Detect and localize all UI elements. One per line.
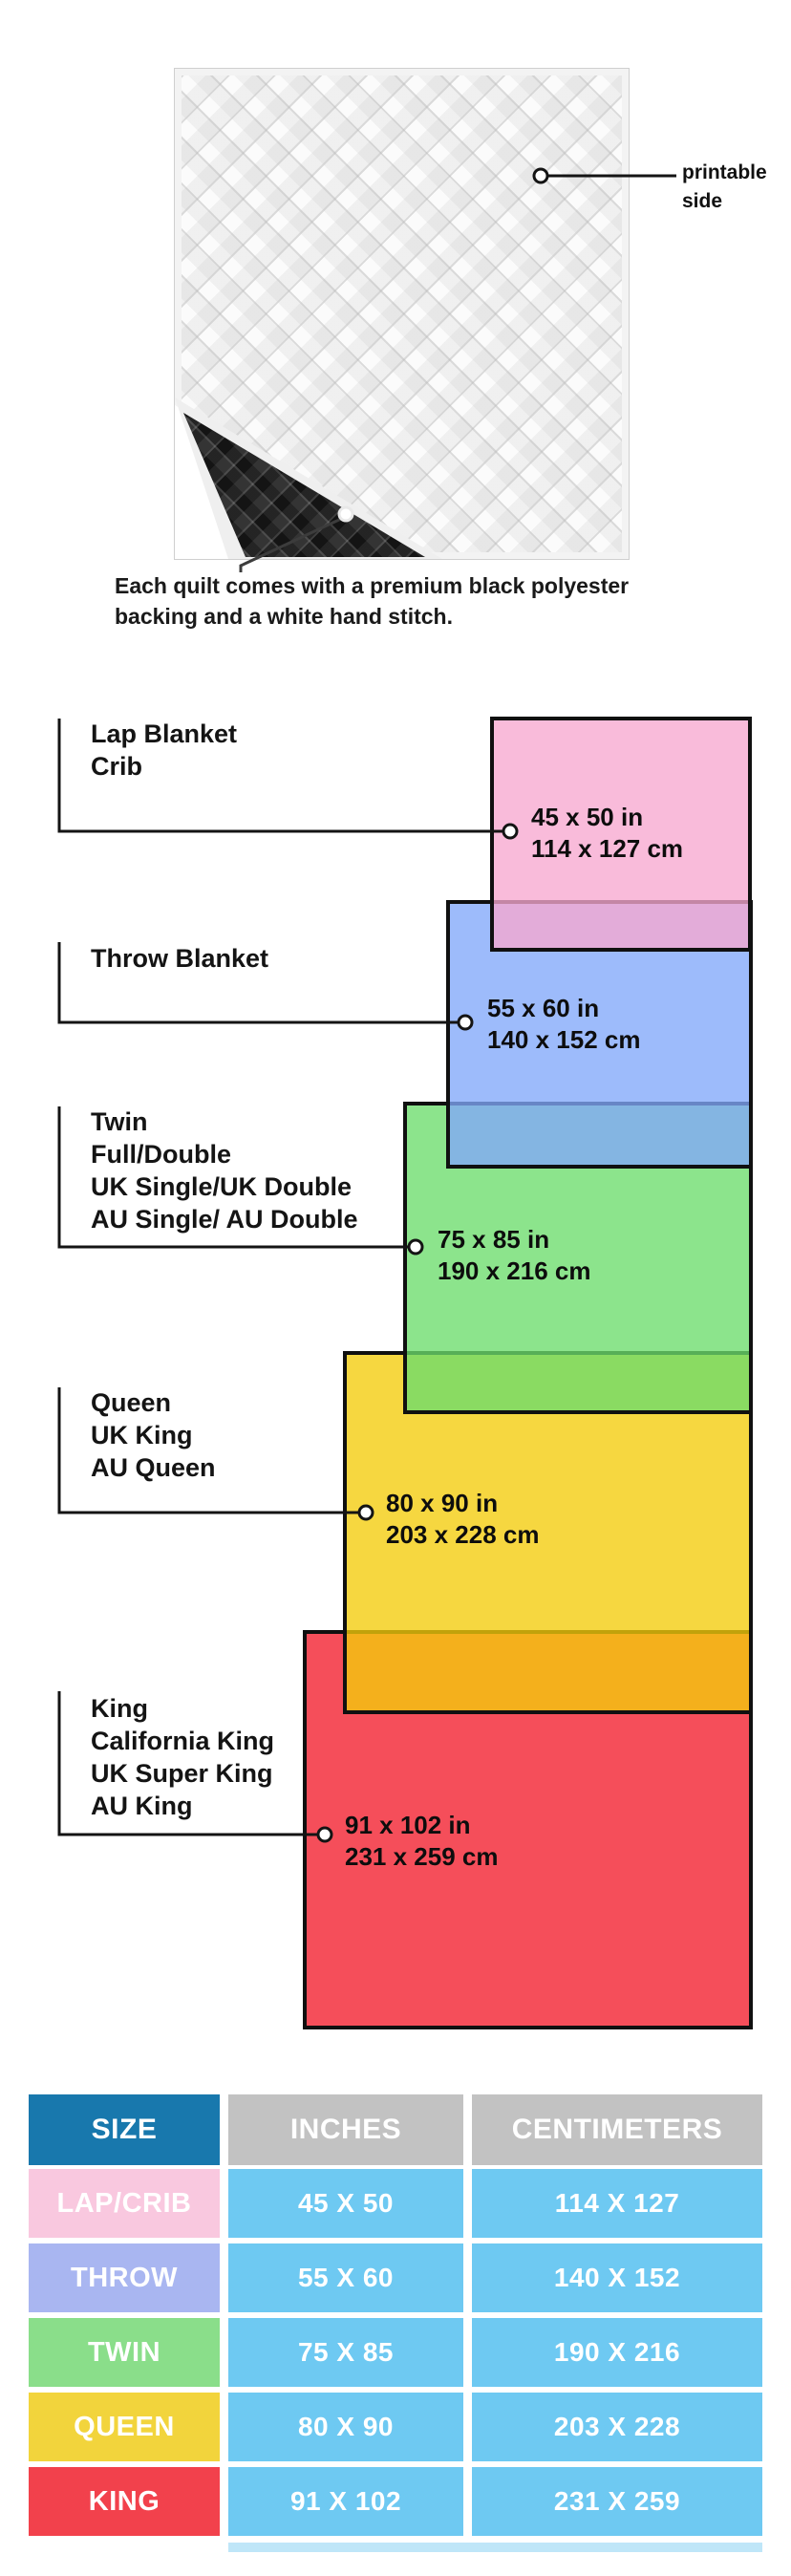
size-table: SIZE INCHES CENTIMETERS LAP/CRIB 45 X 50… [29, 2094, 762, 2536]
table-row-twin-inches: 75 X 85 [228, 2318, 463, 2387]
label-king: King California King UK Super King AU Ki… [91, 1692, 274, 1822]
label-line: AU Single/ AU Double [91, 1203, 358, 1235]
label-lap-crib: Lap Blanket Crib [91, 718, 237, 783]
dims-inches: 45 x 50 in [531, 802, 683, 833]
table-row-lap-crib-inches: 45 X 50 [228, 2169, 463, 2238]
label-throw: Throw Blanket [91, 942, 268, 975]
label-queen: Queen UK King AU Queen [91, 1386, 216, 1484]
label-line: Twin [91, 1106, 358, 1138]
label-line: Crib [91, 750, 237, 783]
table-row-king-inches: 91 X 102 [228, 2467, 463, 2536]
table-row-king-cm: 231 X 259 [472, 2467, 762, 2536]
table-bottom-strip [228, 2543, 762, 2552]
dims-king: 91 x 102 in 231 x 259 cm [345, 1810, 498, 1873]
label-line: Queen [91, 1386, 216, 1419]
table-header-centimeters: CENTIMETERS [472, 2094, 762, 2165]
table-row-twin-cm: 190 X 216 [472, 2318, 762, 2387]
table-header-size: SIZE [29, 2094, 220, 2165]
label-line: UK Super King [91, 1757, 274, 1790]
quilt-caption: Each quilt comes with a premium black po… [115, 570, 629, 632]
quilt-size-chart-infographic: { "quilt": { "printable_label_line1": "p… [0, 0, 791, 2576]
dims-queen: 80 x 90 in 203 x 228 cm [386, 1488, 539, 1551]
dims-cm: 114 x 127 cm [531, 833, 683, 865]
quilt-caption-line2: backing and a white hand stitch. [115, 601, 629, 632]
table-row-lap-crib-size: LAP/CRIB [29, 2169, 220, 2238]
printable-side-label-line1: printable [682, 159, 767, 187]
label-line: King [91, 1692, 274, 1725]
dims-lap-crib: 45 x 50 in 114 x 127 cm [531, 802, 683, 865]
label-line: UK King [91, 1419, 216, 1451]
table-row-queen-size: QUEEN [29, 2393, 220, 2461]
table-row-king-size: KING [29, 2467, 220, 2536]
printable-side-label: printable side [682, 159, 767, 216]
label-line: Lap Blanket [91, 718, 237, 750]
table-row-throw-size: THROW [29, 2243, 220, 2312]
dims-inches: 55 x 60 in [487, 993, 640, 1024]
label-line: Throw Blanket [91, 942, 268, 975]
dims-cm: 140 x 152 cm [487, 1024, 640, 1056]
dims-cm: 203 x 228 cm [386, 1519, 539, 1551]
label-line: UK Single/UK Double [91, 1170, 358, 1203]
table-row-lap-crib-cm: 114 X 127 [472, 2169, 762, 2238]
label-line: California King [91, 1725, 274, 1757]
dims-inches: 80 x 90 in [386, 1488, 539, 1519]
table-row-queen-inches: 80 X 90 [228, 2393, 463, 2461]
printable-side-label-line2: side [682, 187, 767, 216]
table-row-twin-size: TWIN [29, 2318, 220, 2387]
label-line: AU King [91, 1790, 274, 1822]
label-line: Full/Double [91, 1138, 358, 1170]
table-row-queen-cm: 203 X 228 [472, 2393, 762, 2461]
dims-cm: 190 x 216 cm [438, 1256, 590, 1287]
dims-twin: 75 x 85 in 190 x 216 cm [438, 1224, 590, 1287]
quilt-caption-line1: Each quilt comes with a premium black po… [115, 570, 629, 601]
label-line: AU Queen [91, 1451, 216, 1484]
table-header-inches: INCHES [228, 2094, 463, 2165]
table-row-throw-inches: 55 X 60 [228, 2243, 463, 2312]
dims-throw: 55 x 60 in 140 x 152 cm [487, 993, 640, 1056]
quilt-photo [175, 69, 629, 559]
table-row-throw-cm: 140 X 152 [472, 2243, 762, 2312]
dims-cm: 231 x 259 cm [345, 1841, 498, 1873]
dims-inches: 91 x 102 in [345, 1810, 498, 1841]
label-twin: Twin Full/Double UK Single/UK Double AU … [91, 1106, 358, 1235]
dims-inches: 75 x 85 in [438, 1224, 590, 1256]
